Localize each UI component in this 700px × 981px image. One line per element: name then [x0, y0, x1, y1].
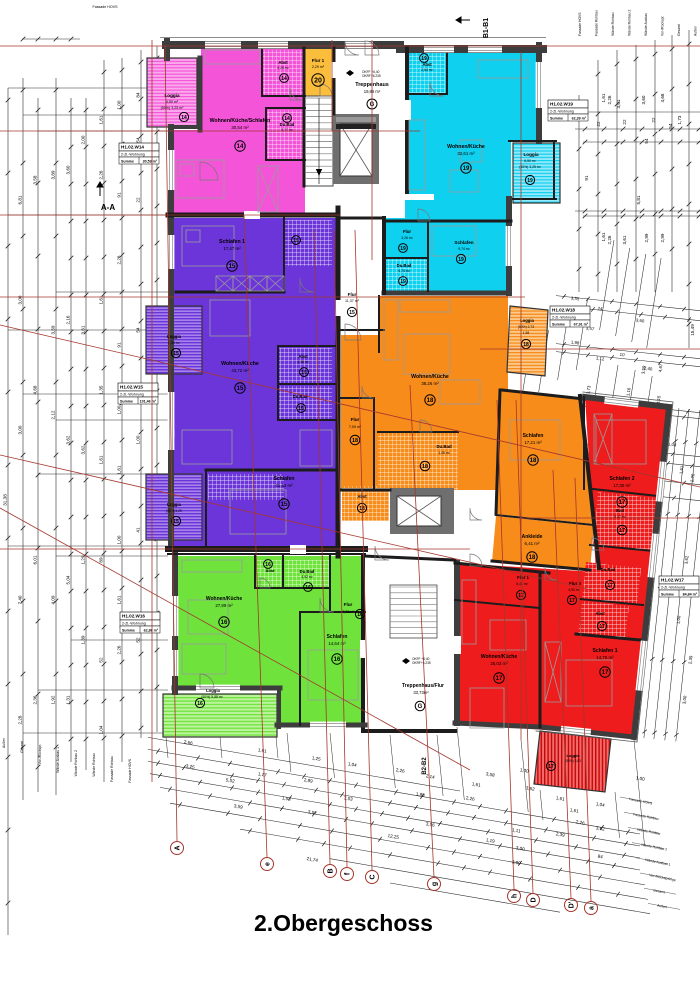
- svg-text:1,61: 1,61: [601, 232, 606, 241]
- svg-text:15: 15: [173, 519, 179, 525]
- svg-text:Loggia: Loggia: [523, 152, 539, 157]
- svg-text:91: 91: [584, 175, 589, 181]
- svg-text:Schlafen: Schlafen: [274, 476, 295, 482]
- svg-text:19: 19: [400, 246, 406, 252]
- svg-text:4,52 m²: 4,52 m²: [301, 575, 313, 579]
- svg-text:15: 15: [298, 406, 304, 412]
- svg-text:3,60: 3,60: [66, 165, 71, 174]
- svg-text:2-Zi.-Wohnung: 2-Zi.-Wohnung: [120, 393, 144, 397]
- svg-text:Gesamt: Gesamt: [677, 24, 681, 36]
- svg-text:3,00: 3,00: [18, 295, 23, 304]
- svg-text:18: 18: [523, 342, 529, 348]
- svg-text:Fassade HOVS: Fassade HOVS: [93, 5, 119, 9]
- svg-text:1,12: 1,12: [596, 356, 606, 362]
- svg-text:1,61: 1,61: [117, 595, 122, 604]
- svg-text:Flur: Flur: [344, 602, 353, 607]
- svg-text:Summe: Summe: [661, 593, 674, 597]
- svg-text:Summe: Summe: [122, 629, 135, 633]
- svg-text:84: 84: [136, 92, 141, 98]
- svg-text:54: 54: [644, 138, 649, 144]
- svg-text:2,00: 2,00: [81, 135, 86, 144]
- svg-text:3,26 m²: 3,26 m²: [401, 236, 413, 240]
- svg-text:Wände Rohbau 2: Wände Rohbau 2: [628, 9, 632, 36]
- svg-text:Flur 1: Flur 1: [517, 575, 530, 580]
- svg-text:7,32m²: 7,32m²: [342, 610, 354, 614]
- svg-text:Vor-/Rückspr.: Vor-/Rückspr.: [661, 16, 665, 36]
- svg-text:5,47 m²: 5,47 m²: [614, 515, 626, 519]
- svg-text:52: 52: [99, 657, 104, 663]
- svg-text:19: 19: [527, 178, 533, 184]
- svg-text:14,64 m²: 14,64 m²: [328, 641, 346, 646]
- svg-text:11,37 m²: 11,37 m²: [345, 299, 360, 303]
- svg-text:Wohnen/Küche: Wohnen/Küche: [447, 144, 485, 150]
- svg-text:16: 16: [334, 657, 341, 663]
- svg-text:3,61: 3,61: [622, 235, 627, 244]
- svg-text:H1.02.W14: H1.02.W14: [121, 145, 144, 150]
- svg-text:19: 19: [463, 166, 470, 172]
- svg-text:(50%)3,25: (50%)3,25: [166, 509, 182, 513]
- svg-text:5,81: 5,81: [636, 195, 641, 204]
- svg-text:54: 54: [136, 327, 141, 333]
- svg-text:6,50 m²: 6,50 m²: [166, 100, 179, 104]
- svg-text:6,41 m²: 6,41 m²: [525, 541, 540, 546]
- svg-text:17: 17: [599, 624, 605, 630]
- svg-text:3,00: 3,00: [18, 425, 23, 434]
- svg-text:2,40: 2,40: [644, 366, 654, 372]
- svg-text:Fassade HOVS: Fassade HOVS: [128, 758, 132, 782]
- svg-text:1,00: 1,00: [117, 535, 122, 544]
- svg-text:32,61 m²: 32,61 m²: [457, 151, 475, 156]
- svg-text:Außen: Außen: [694, 26, 698, 36]
- svg-text:2-Zi.-Wohnung: 2-Zi.-Wohnung: [661, 586, 685, 590]
- svg-text:1,39: 1,39: [81, 635, 86, 644]
- svg-text:1,00: 1,00: [136, 435, 141, 444]
- svg-text:5,04: 5,04: [66, 575, 71, 584]
- svg-text:6,50 m²: 6,50 m²: [168, 341, 180, 345]
- svg-text:Summe: Summe: [120, 400, 133, 404]
- svg-text:1,45 m²: 1,45 m²: [438, 451, 450, 455]
- svg-text:Du.Bad: Du.Bad: [300, 569, 315, 574]
- svg-text:16: 16: [265, 562, 271, 568]
- svg-text:Wohnen/Küche: Wohnen/Küche: [206, 596, 243, 602]
- svg-text:52: 52: [136, 637, 141, 643]
- svg-text:2,26: 2,26: [607, 235, 612, 244]
- svg-text:4,74 m²: 4,74 m²: [398, 269, 410, 273]
- svg-text:2,26: 2,26: [117, 645, 122, 654]
- svg-text:27,89 m²: 27,89 m²: [215, 603, 233, 608]
- svg-text:62,86 m²: 62,86 m²: [144, 629, 159, 633]
- svg-text:43,72 m²: 43,72 m²: [231, 368, 249, 373]
- svg-text:2.Obergeschoss: 2.Obergeschoss: [254, 910, 433, 936]
- svg-text:Wände Rohbau 2: Wände Rohbau 2: [74, 750, 78, 777]
- svg-text:14: 14: [181, 115, 187, 121]
- svg-text:G: G: [418, 704, 423, 710]
- svg-text:19: 19: [400, 279, 406, 285]
- svg-text:67,91 m²: 67,91 m²: [574, 323, 589, 327]
- svg-text:1,61: 1,61: [99, 115, 104, 124]
- svg-text:Bad: Bad: [616, 508, 625, 513]
- svg-text:Schlafen: Schlafen: [454, 240, 473, 245]
- svg-text:15: 15: [349, 310, 355, 316]
- svg-text:6,81: 6,81: [18, 195, 23, 204]
- svg-text:22: 22: [596, 121, 601, 127]
- svg-text:Schlafen: Schlafen: [523, 433, 544, 439]
- svg-text:3,59: 3,59: [51, 325, 56, 334]
- svg-text:OKRF+6,235: OKRF+6,235: [412, 661, 431, 665]
- svg-text:Wohnen/Küche: Wohnen/Küche: [221, 361, 259, 367]
- svg-text:Schlafen 1: Schlafen 1: [219, 239, 245, 245]
- svg-text:2,26: 2,26: [607, 95, 612, 104]
- svg-text:6,50 m²: 6,50 m²: [524, 159, 536, 163]
- svg-text:Du.Bad: Du.Bad: [397, 263, 412, 268]
- svg-text:17: 17: [619, 528, 625, 534]
- svg-text:7,40: 7,40: [18, 595, 23, 604]
- svg-text:16: 16: [197, 701, 203, 707]
- svg-text:22: 22: [651, 117, 656, 123]
- svg-text:Wände Rohbau: Wände Rohbau: [92, 753, 96, 777]
- svg-text:2,12: 2,12: [51, 410, 56, 419]
- svg-text:2-Zi.-Wohnung: 2-Zi.-Wohnung: [121, 153, 145, 157]
- svg-text:3,62: 3,62: [81, 445, 86, 454]
- svg-text:2,28: 2,28: [18, 715, 23, 724]
- svg-text:14: 14: [281, 76, 287, 82]
- svg-text:Fassade Rohbau: Fassade Rohbau: [110, 756, 114, 782]
- svg-text:B2-B2: B2-B2: [422, 757, 428, 775]
- svg-text:18: 18: [427, 398, 434, 404]
- svg-text:Loggia: Loggia: [206, 688, 220, 693]
- svg-text:a: a: [589, 906, 596, 910]
- svg-text:38,26 m²: 38,26 m²: [421, 381, 439, 386]
- svg-text:1,92: 1,92: [51, 695, 56, 704]
- svg-text:41: 41: [136, 527, 141, 533]
- svg-text:Loggia: Loggia: [164, 93, 180, 98]
- svg-text:Treppenhaus/Flur: Treppenhaus/Flur: [402, 683, 444, 689]
- svg-text:19: 19: [421, 56, 427, 62]
- svg-text:H1.02.W19: H1.02.W19: [550, 102, 573, 107]
- svg-text:Summe: Summe: [552, 323, 565, 327]
- svg-text:2,29 m²: 2,29 m²: [312, 65, 325, 69]
- svg-text:Flur: Flur: [348, 292, 357, 297]
- svg-text:4,68: 4,68: [33, 385, 38, 394]
- svg-text:OKRF+6,235: OKRF+6,235: [362, 74, 381, 78]
- svg-text:(50%) 5,88 m²: (50%) 5,88 m²: [201, 695, 223, 699]
- svg-text:1,98: 1,98: [571, 340, 581, 346]
- svg-text:21,42 m²: 21,42 m²: [275, 483, 293, 488]
- svg-text:1,61: 1,61: [99, 295, 104, 304]
- svg-text:2-Zi.-Wohnung: 2-Zi.-Wohnung: [122, 622, 146, 626]
- svg-text:D': D': [569, 901, 576, 908]
- svg-text:2,99: 2,99: [644, 233, 649, 242]
- svg-text:17,30 m²: 17,30 m²: [613, 483, 631, 488]
- svg-text:(50%) 3,25 m²: (50%) 3,25 m²: [161, 106, 185, 110]
- svg-text:2,99: 2,99: [660, 233, 665, 242]
- svg-text:Wohnen/Küche: Wohnen/Küche: [411, 374, 449, 380]
- svg-text:15: 15: [301, 370, 307, 376]
- svg-text:A: A: [175, 845, 182, 850]
- svg-text:17: 17: [607, 583, 613, 589]
- svg-text:54: 54: [668, 123, 673, 129]
- svg-text:Schlafen: Schlafen: [327, 634, 348, 640]
- svg-text:Wände Ausbau: Wände Ausbau: [644, 13, 648, 36]
- svg-text:17: 17: [602, 670, 609, 676]
- svg-text:18: 18: [352, 438, 358, 444]
- svg-text:15: 15: [281, 502, 288, 508]
- svg-text:16: 16: [305, 585, 311, 591]
- svg-text:18: 18: [422, 464, 428, 470]
- svg-text:30,54 m²: 30,54 m²: [231, 125, 249, 130]
- svg-text:Schlafen 1: Schlafen 1: [592, 648, 617, 654]
- svg-text:(50%) 2,73: (50%) 2,73: [518, 325, 534, 329]
- svg-text:17: 17: [619, 500, 626, 506]
- svg-text:Wohnen/Küche: Wohnen/Küche: [481, 654, 518, 660]
- svg-text:C: C: [370, 874, 377, 879]
- svg-text:Abst: Abst: [298, 354, 308, 359]
- svg-text:1,61: 1,61: [117, 465, 122, 474]
- svg-text:84,84 m²: 84,84 m²: [683, 593, 698, 597]
- svg-text:22: 22: [622, 119, 627, 125]
- svg-text:Flur 1: Flur 1: [312, 58, 325, 63]
- svg-text:Summe: Summe: [121, 160, 134, 164]
- svg-text:H1.02.W18: H1.02.W18: [552, 308, 575, 313]
- svg-text:H1.02.W16: H1.02.W16: [122, 614, 145, 619]
- svg-text:3,62: 3,62: [66, 435, 71, 444]
- svg-text:2-Zi.-Wohnung: 2-Zi.-Wohnung: [552, 316, 576, 320]
- svg-text:3,38 m²: 3,38 m²: [297, 360, 309, 364]
- svg-text:Loggia: Loggia: [520, 318, 534, 323]
- svg-text:3,00: 3,00: [682, 695, 688, 705]
- svg-text:101,46 m²: 101,46 m²: [140, 400, 157, 404]
- svg-text:30,53 m²: 30,53 m²: [143, 160, 158, 164]
- svg-text:17,47 m²: 17,47 m²: [223, 246, 241, 251]
- svg-text:Gesamt: Gesamt: [20, 741, 24, 753]
- svg-text:33,73m²: 33,73m²: [413, 690, 429, 695]
- svg-text:15: 15: [173, 351, 179, 357]
- svg-text:Abst: Abst: [278, 60, 288, 65]
- svg-text:4,90 m²: 4,90 m²: [568, 588, 580, 592]
- svg-text:3,58: 3,58: [33, 175, 38, 184]
- svg-text:Wände Rohbau: Wände Rohbau: [611, 12, 615, 36]
- svg-text:17: 17: [569, 598, 575, 604]
- svg-text:Fassade HOVS: Fassade HOVS: [578, 12, 582, 36]
- svg-text:Abst: Abst: [595, 611, 605, 616]
- svg-text:1,29: 1,29: [81, 555, 86, 564]
- svg-text:17: 17: [548, 764, 554, 770]
- svg-text:Du.Bad: Du.Bad: [601, 567, 616, 572]
- svg-text:Loggia: Loggia: [167, 502, 181, 507]
- svg-text:Schlafen 2: Schlafen 2: [609, 476, 634, 482]
- svg-text:2,26: 2,26: [99, 170, 104, 179]
- svg-text:H1.02.W15: H1.02.W15: [120, 385, 143, 390]
- svg-text:19: 19: [458, 257, 464, 263]
- svg-text:3,55: 3,55: [571, 296, 581, 302]
- svg-text:B: B: [328, 868, 335, 873]
- svg-text:1,73: 1,73: [677, 115, 682, 124]
- svg-text:31,38: 31,38: [3, 494, 8, 506]
- svg-text:16: 16: [357, 612, 363, 618]
- svg-text:A-A: A-A: [101, 203, 115, 212]
- svg-text:91: 91: [117, 342, 122, 348]
- svg-text:Wohnen/Küche/Schlafen: Wohnen/Küche/Schlafen: [210, 118, 271, 124]
- svg-text:18: 18: [530, 458, 537, 464]
- svg-text:4,28 m²: 4,28 m²: [277, 66, 289, 70]
- svg-text:22: 22: [136, 197, 141, 203]
- svg-text:Loggia: Loggia: [566, 753, 580, 758]
- svg-text:B1-B1: B1-B1: [483, 18, 490, 38]
- svg-text:89: 89: [99, 557, 104, 563]
- svg-text:1,61: 1,61: [601, 93, 606, 102]
- svg-text:9,74 m²: 9,74 m²: [458, 247, 470, 251]
- svg-text:14: 14: [284, 116, 290, 122]
- svg-text:Fassade Rohbau: Fassade Rohbau: [595, 10, 599, 36]
- svg-text:1,61: 1,61: [679, 465, 685, 475]
- svg-text:H1.02.W17: H1.02.W17: [661, 578, 684, 583]
- svg-text:15: 15: [293, 238, 299, 244]
- svg-text:h: h: [512, 894, 519, 898]
- svg-text:Flur: Flur: [403, 229, 412, 234]
- svg-text:(50%) 3,03: (50%) 3,03: [565, 759, 581, 763]
- svg-text:3,60: 3,60: [636, 318, 646, 324]
- svg-text:e: e: [265, 862, 272, 866]
- svg-text:91: 91: [117, 192, 122, 198]
- svg-text:Außen: Außen: [2, 738, 6, 748]
- svg-text:1,00: 1,00: [676, 615, 682, 625]
- svg-text:4,68: 4,68: [660, 93, 665, 102]
- svg-text:3,60: 3,60: [641, 95, 646, 104]
- svg-text:2-Zi.-Wohnung: 2-Zi.-Wohnung: [550, 110, 574, 114]
- svg-text:g: g: [432, 882, 439, 886]
- svg-text:6,01: 6,01: [33, 555, 38, 564]
- svg-text:Du.Bad: Du.Bad: [436, 444, 452, 449]
- svg-text:1,35: 1,35: [99, 385, 104, 394]
- svg-text:15: 15: [237, 386, 244, 392]
- svg-text:Wände Ausbau 1: Wände Ausbau 1: [56, 747, 60, 773]
- svg-text:15: 15: [229, 264, 236, 270]
- svg-text:14,75 m²: 14,75 m²: [596, 655, 614, 660]
- svg-text:1,00: 1,00: [117, 405, 122, 414]
- svg-text:20: 20: [314, 78, 322, 85]
- svg-text:2,64 m²: 2,64 m²: [421, 68, 433, 72]
- svg-text:15,49: 15,49: [690, 324, 695, 336]
- svg-text:Ankleide: Ankleide: [522, 534, 543, 540]
- svg-text:17,21 m²: 17,21 m²: [524, 440, 542, 445]
- svg-text:17: 17: [496, 676, 503, 682]
- svg-text:18: 18: [529, 555, 536, 561]
- svg-text:1,04: 1,04: [99, 725, 104, 734]
- svg-text:1,98: 1,98: [523, 331, 530, 335]
- svg-text:2,26: 2,26: [690, 473, 696, 483]
- svg-text:3,62: 3,62: [684, 555, 690, 565]
- svg-text:(50%) 3,25 m²: (50%) 3,25 m²: [519, 165, 541, 169]
- svg-text:62,39 m²: 62,39 m²: [572, 117, 587, 121]
- svg-text:Flur: Flur: [351, 417, 360, 422]
- svg-text:16: 16: [221, 620, 228, 626]
- svg-text:14: 14: [237, 144, 244, 150]
- svg-text:Vor-/Rückspr.: Vor-/Rückspr.: [38, 744, 42, 764]
- svg-text:2,16: 2,16: [66, 315, 71, 324]
- svg-text:3,89: 3,89: [51, 170, 56, 179]
- svg-text:54: 54: [136, 137, 141, 143]
- svg-text:2,39: 2,39: [688, 655, 694, 665]
- svg-text:D: D: [531, 897, 538, 902]
- svg-text:2,36: 2,36: [33, 695, 38, 704]
- svg-text:1,61: 1,61: [99, 455, 104, 464]
- svg-text:Summe: Summe: [550, 117, 563, 121]
- svg-text:25,03 m²: 25,03 m²: [490, 661, 508, 666]
- svg-text:4,09: 4,09: [51, 595, 56, 604]
